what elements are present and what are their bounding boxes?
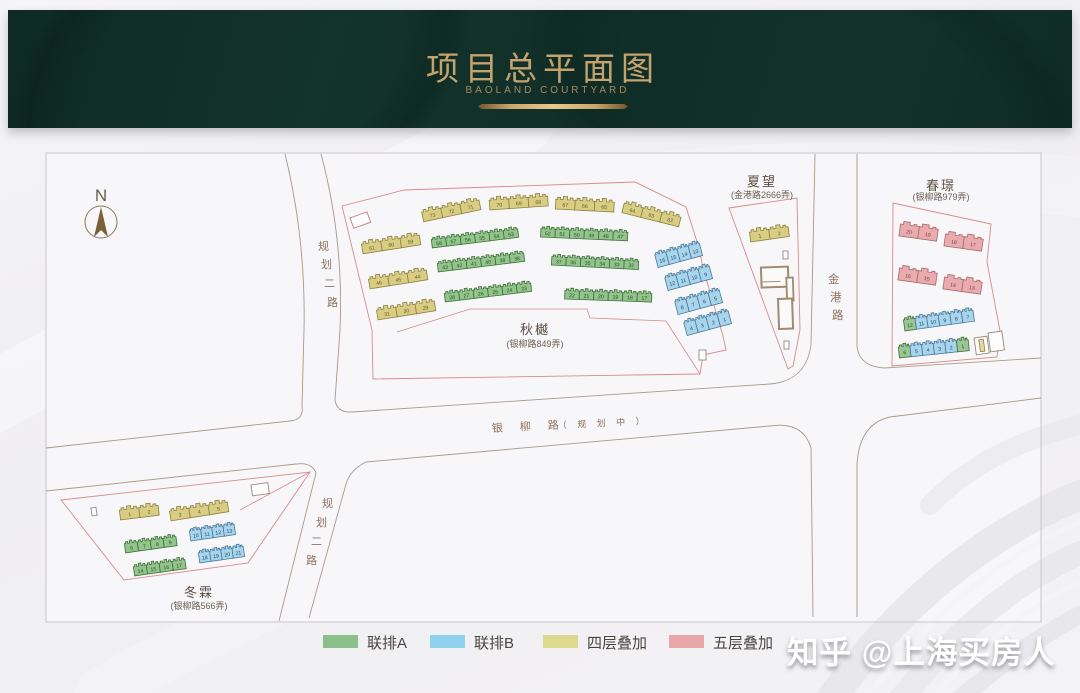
svg-text:12: 12 bbox=[215, 530, 222, 537]
svg-text:冬霖: 冬霖 bbox=[184, 585, 214, 600]
svg-text:春璟: 春璟 bbox=[926, 178, 956, 193]
svg-text:联排A: 联排A bbox=[367, 635, 407, 652]
svg-text:17: 17 bbox=[969, 242, 976, 249]
svg-text:53: 53 bbox=[508, 232, 515, 239]
svg-text:(金港路2666弄): (金港路2666弄) bbox=[731, 189, 793, 200]
svg-text:21: 21 bbox=[235, 550, 242, 557]
svg-text:70: 70 bbox=[496, 202, 502, 208]
svg-text:13: 13 bbox=[226, 528, 233, 535]
svg-text:31: 31 bbox=[384, 311, 391, 318]
svg-text:42: 42 bbox=[456, 263, 463, 270]
svg-text:66: 66 bbox=[582, 204, 588, 210]
svg-text:15: 15 bbox=[150, 566, 157, 573]
svg-text:26: 26 bbox=[478, 291, 485, 298]
svg-text:41: 41 bbox=[471, 261, 478, 268]
svg-text:16: 16 bbox=[163, 565, 170, 572]
svg-text:43: 43 bbox=[442, 265, 449, 272]
svg-text:54: 54 bbox=[493, 234, 500, 241]
svg-text:39: 39 bbox=[499, 258, 506, 265]
svg-text:59: 59 bbox=[407, 239, 414, 246]
svg-text:19: 19 bbox=[213, 553, 220, 560]
svg-text:55: 55 bbox=[479, 235, 486, 242]
svg-text:58: 58 bbox=[436, 241, 443, 248]
svg-text:35: 35 bbox=[585, 261, 591, 267]
svg-text:47: 47 bbox=[617, 234, 623, 240]
svg-text:23: 23 bbox=[521, 286, 528, 293]
svg-text:57: 57 bbox=[450, 239, 457, 246]
svg-text:20: 20 bbox=[906, 229, 913, 236]
svg-text:(银柳路979弄): (银柳路979弄) bbox=[912, 191, 969, 202]
svg-text:夏望: 夏望 bbox=[747, 174, 777, 189]
svg-text:18: 18 bbox=[202, 555, 209, 562]
svg-text:36: 36 bbox=[570, 260, 576, 266]
svg-text:14: 14 bbox=[950, 282, 957, 289]
svg-text:67: 67 bbox=[562, 203, 568, 209]
svg-text:32: 32 bbox=[628, 263, 634, 269]
svg-text:四层叠加: 四层叠加 bbox=[587, 635, 647, 652]
svg-text:17: 17 bbox=[641, 296, 647, 302]
svg-text:34: 34 bbox=[599, 261, 605, 267]
svg-text:38: 38 bbox=[514, 256, 521, 263]
svg-text:20: 20 bbox=[598, 294, 604, 300]
svg-text:联排B: 联排B bbox=[474, 635, 514, 652]
svg-text:52: 52 bbox=[545, 231, 551, 237]
svg-text:61: 61 bbox=[369, 245, 376, 252]
svg-text:秋樾: 秋樾 bbox=[520, 322, 550, 337]
svg-text:五层叠加: 五层叠加 bbox=[713, 635, 773, 652]
svg-text:37: 37 bbox=[556, 259, 562, 265]
svg-text:11: 11 bbox=[204, 531, 210, 538]
svg-text:20: 20 bbox=[224, 552, 231, 559]
svg-text:29: 29 bbox=[422, 305, 429, 312]
svg-text:27: 27 bbox=[463, 293, 470, 300]
svg-text:10: 10 bbox=[930, 319, 937, 326]
svg-text:(银柳路566弄): (银柳路566弄) bbox=[170, 600, 227, 611]
svg-text:13: 13 bbox=[968, 285, 975, 292]
svg-text:40: 40 bbox=[485, 259, 492, 266]
svg-text:14: 14 bbox=[137, 568, 144, 575]
svg-text:68: 68 bbox=[535, 200, 541, 206]
svg-text:33: 33 bbox=[614, 262, 620, 268]
svg-text:28: 28 bbox=[449, 295, 456, 302]
svg-text:10: 10 bbox=[193, 533, 200, 540]
svg-text:24: 24 bbox=[506, 288, 513, 295]
svg-text:19: 19 bbox=[924, 232, 931, 239]
svg-text:49: 49 bbox=[588, 233, 594, 239]
svg-text:45: 45 bbox=[395, 277, 402, 284]
svg-text:16: 16 bbox=[905, 273, 912, 280]
svg-text:11: 11 bbox=[919, 321, 925, 328]
svg-text:19: 19 bbox=[612, 295, 618, 301]
svg-text:56: 56 bbox=[465, 237, 472, 244]
svg-text:12: 12 bbox=[907, 323, 914, 330]
svg-text:51: 51 bbox=[559, 232, 565, 238]
svg-text:65: 65 bbox=[601, 205, 607, 211]
svg-text:15: 15 bbox=[923, 276, 930, 283]
svg-text:25: 25 bbox=[492, 289, 499, 296]
svg-text:22: 22 bbox=[569, 293, 575, 299]
svg-text:18: 18 bbox=[627, 295, 633, 301]
svg-text:21: 21 bbox=[583, 294, 589, 300]
svg-text:69: 69 bbox=[516, 201, 522, 207]
svg-text:50: 50 bbox=[574, 232, 580, 238]
svg-text:(银柳路849弄): (银柳路849弄) bbox=[506, 338, 563, 349]
svg-text:60: 60 bbox=[388, 242, 395, 249]
svg-text:N: N bbox=[95, 186, 107, 205]
svg-text:46: 46 bbox=[376, 280, 383, 287]
svg-text:18: 18 bbox=[951, 239, 958, 246]
svg-text:17: 17 bbox=[176, 563, 183, 570]
svg-text:44: 44 bbox=[414, 274, 421, 281]
svg-text:48: 48 bbox=[603, 234, 609, 240]
svg-text:30: 30 bbox=[403, 308, 410, 315]
